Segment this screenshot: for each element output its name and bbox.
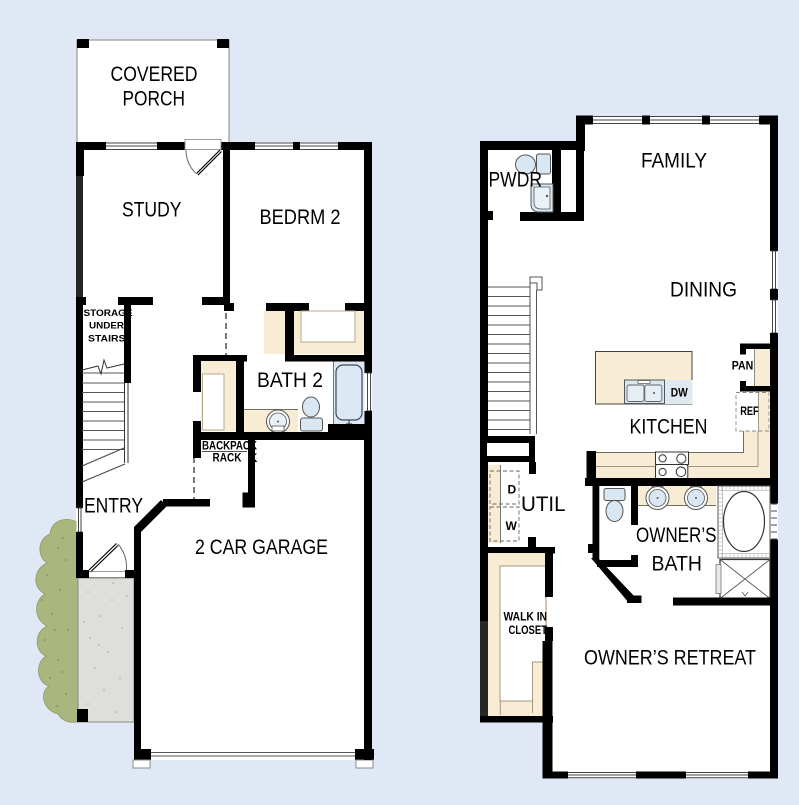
svg-text:PORCH: PORCH bbox=[123, 87, 186, 111]
svg-text:DW: DW bbox=[671, 386, 689, 400]
svg-text:FAMILY: FAMILY bbox=[641, 149, 707, 173]
svg-text:RACK: RACK bbox=[213, 451, 242, 465]
svg-text:2 CAR GARAGE: 2 CAR GARAGE bbox=[195, 535, 328, 559]
svg-text:UNDER: UNDER bbox=[89, 321, 124, 332]
svg-text:DINING: DINING bbox=[670, 278, 737, 302]
svg-text:BATH 2: BATH 2 bbox=[257, 368, 323, 392]
svg-text:BATH: BATH bbox=[652, 552, 703, 576]
svg-text:BEDRM 2: BEDRM 2 bbox=[260, 205, 341, 229]
svg-text:ENTRY: ENTRY bbox=[84, 494, 143, 518]
svg-text:D: D bbox=[508, 483, 517, 497]
svg-text:PAN: PAN bbox=[732, 359, 754, 373]
svg-text:KITCHEN: KITCHEN bbox=[630, 415, 708, 439]
svg-text:CLOSET: CLOSET bbox=[509, 623, 548, 637]
svg-text:STUDY: STUDY bbox=[122, 198, 182, 222]
svg-text:W: W bbox=[506, 519, 518, 533]
svg-text:UTIL: UTIL bbox=[521, 492, 566, 516]
svg-text:PWDR: PWDR bbox=[489, 168, 543, 192]
svg-text:REF: REF bbox=[740, 404, 759, 418]
svg-text:OWNER’S RETREAT: OWNER’S RETREAT bbox=[584, 646, 756, 670]
svg-text:STAIRS: STAIRS bbox=[88, 334, 126, 345]
svg-text:OWNER’S: OWNER’S bbox=[636, 523, 717, 547]
svg-text:COVERED: COVERED bbox=[111, 62, 198, 86]
svg-text:WALK IN: WALK IN bbox=[504, 610, 548, 624]
